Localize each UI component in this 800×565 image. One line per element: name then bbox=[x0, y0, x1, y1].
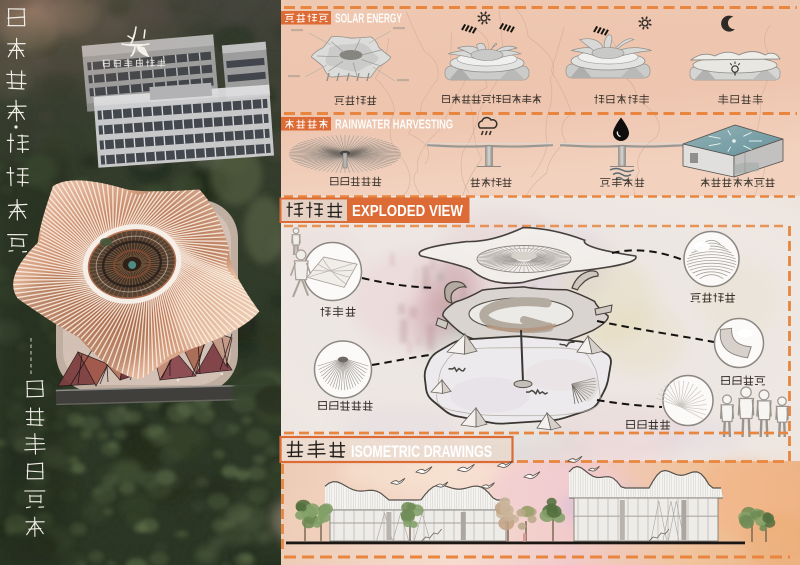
svg-text:ISOMETRIC DRAWINGS: ISOMETRIC DRAWINGS bbox=[351, 443, 492, 461]
svg-text:RAINWATER HARVESTING: RAINWATER HARVESTING bbox=[335, 117, 453, 132]
svg-text:EXPLODED VIEW: EXPLODED VIEW bbox=[352, 203, 463, 220]
svg-text:SOLAR ENERGY: SOLAR ENERGY bbox=[335, 11, 402, 26]
